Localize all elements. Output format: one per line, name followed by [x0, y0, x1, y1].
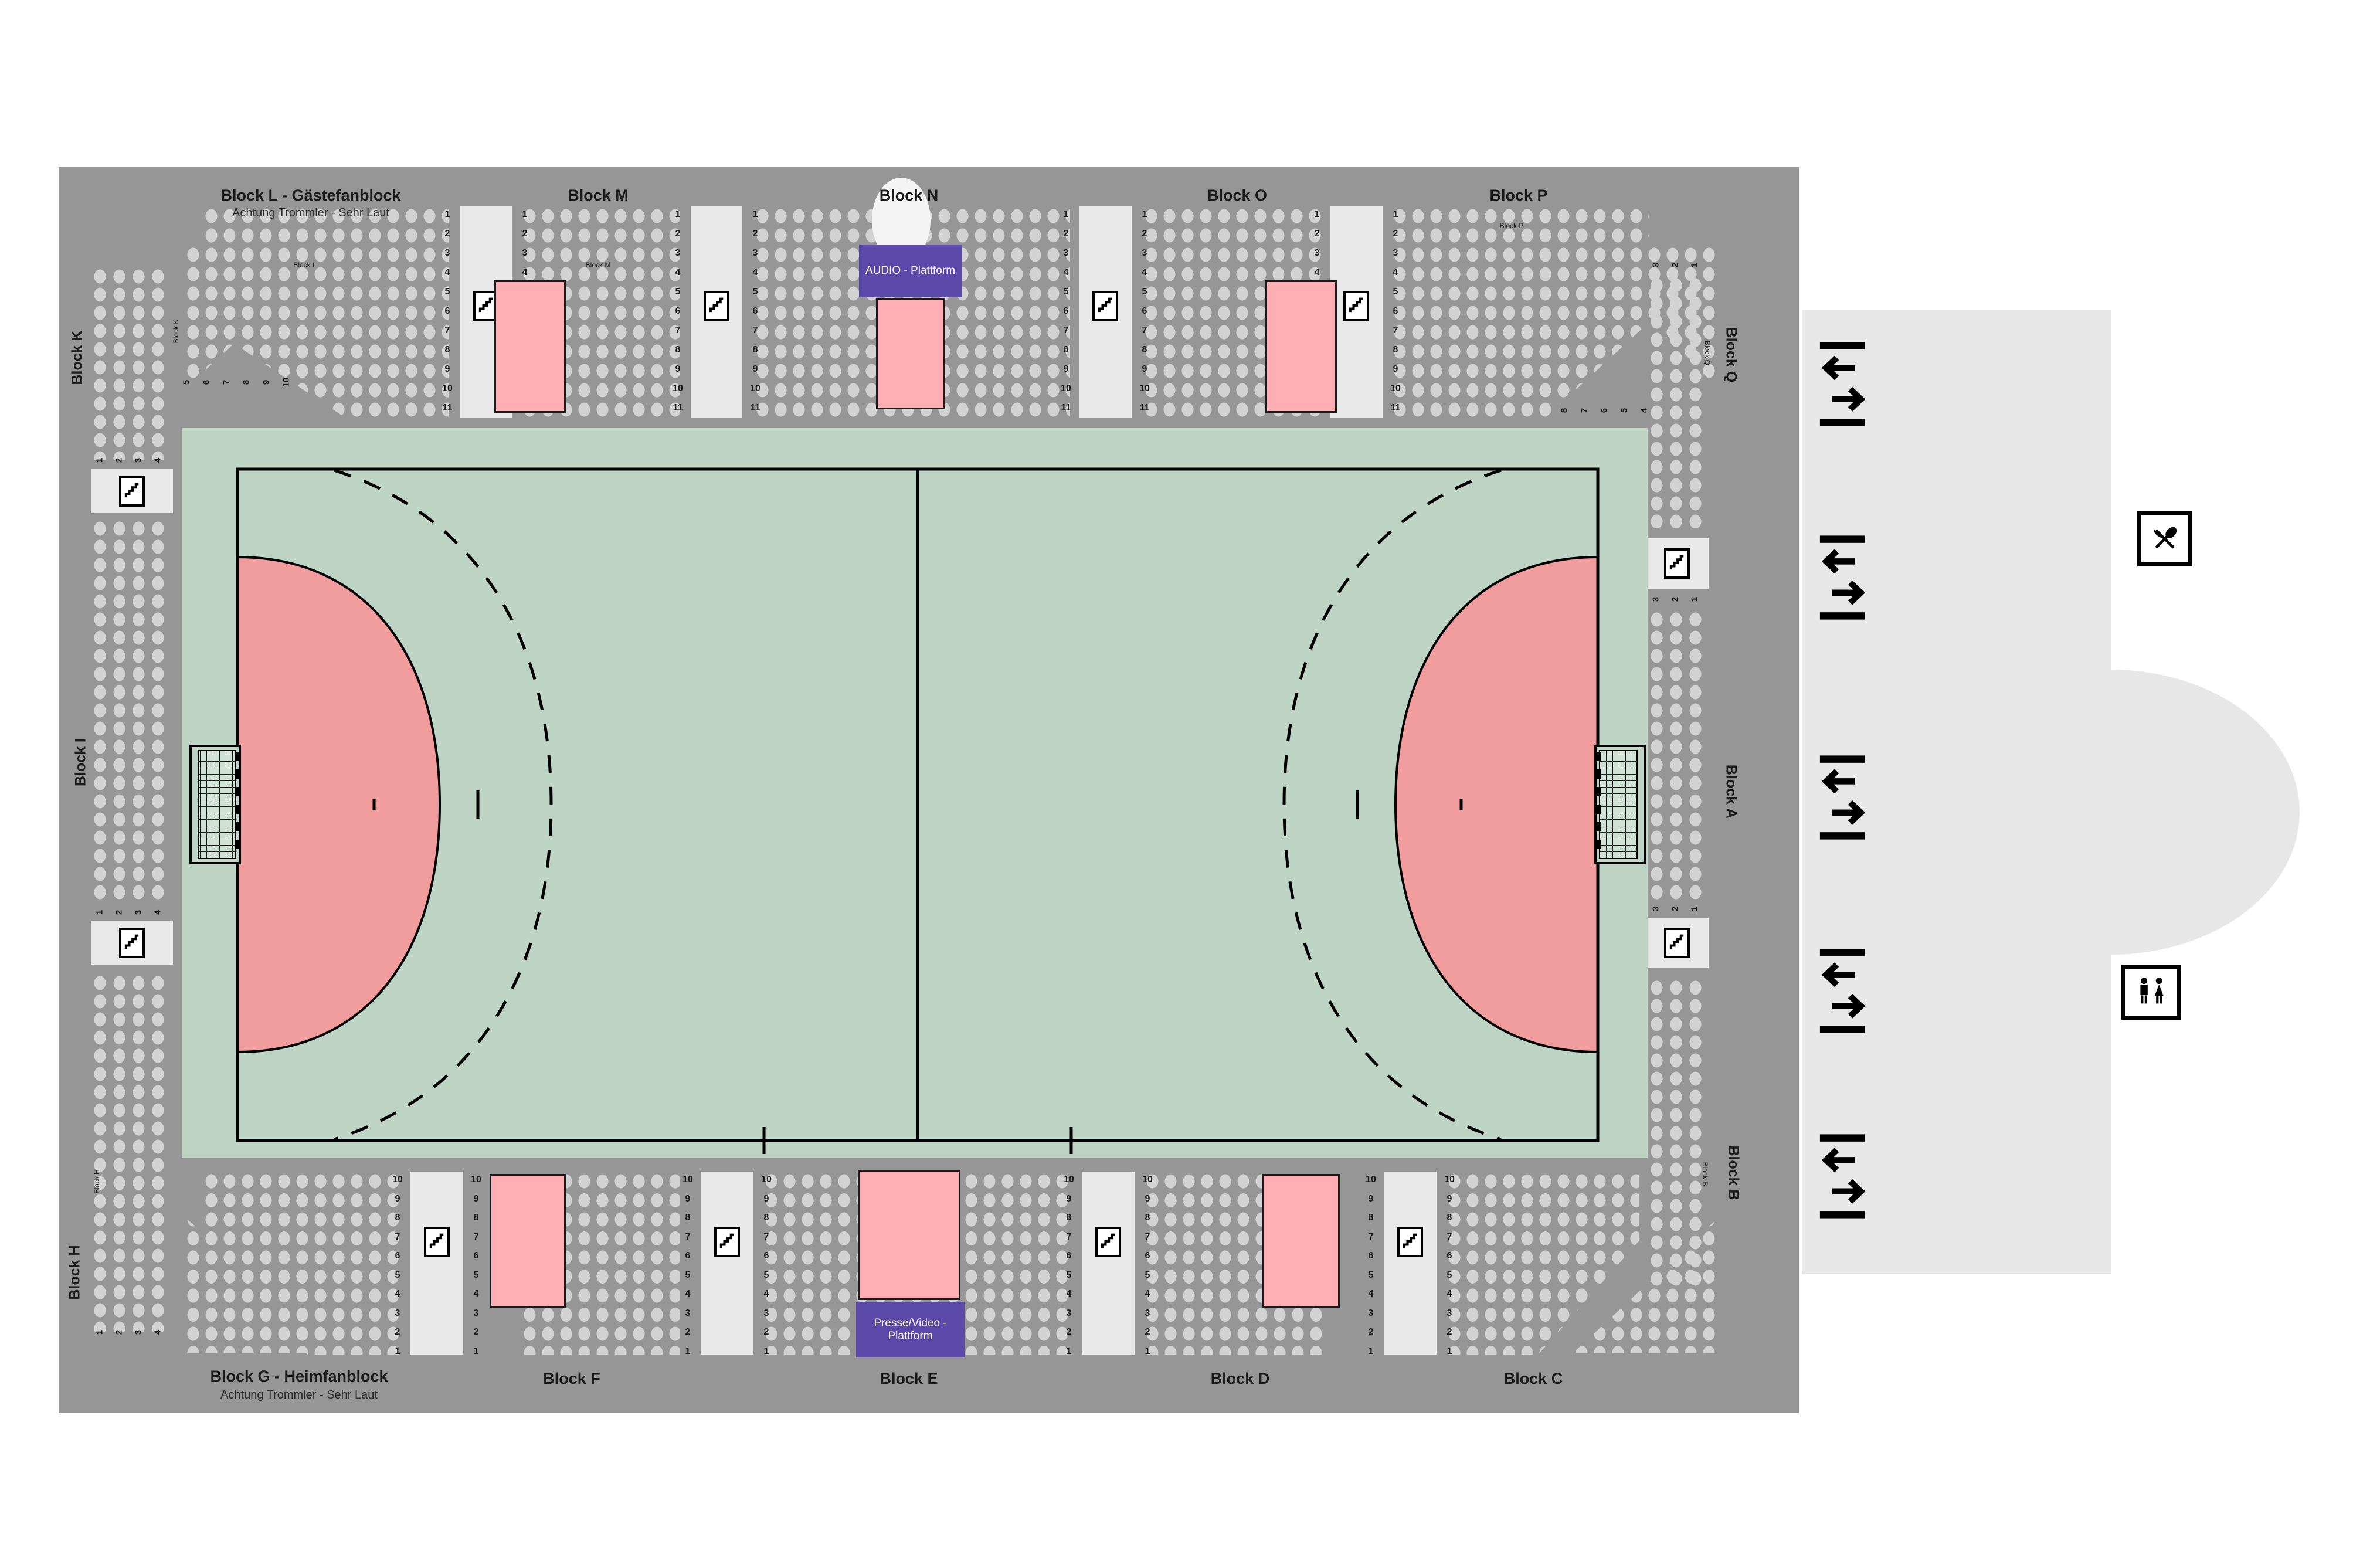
wc-icon — [2121, 965, 2181, 1020]
arena-seating-map: 1234567891011123456789101112345678910111… — [0, 0, 2353, 1568]
row-number: 4 — [434, 267, 460, 278]
block-f-title: Block F — [543, 1370, 600, 1388]
block-p-title: Block P — [1489, 186, 1547, 205]
row-number: 2 — [1132, 229, 1157, 239]
stair-corridor — [1384, 1172, 1437, 1355]
stairs-icon — [1397, 1227, 1423, 1257]
row-number: 10 — [675, 1175, 701, 1185]
column-number: 5 — [1619, 408, 1629, 413]
stair-corridor — [701, 1172, 753, 1355]
row-number: 9 — [1437, 1194, 1462, 1204]
column-number: 2 — [114, 910, 124, 915]
block-a-label: Block A — [1723, 765, 1740, 819]
row-number: 9 — [1053, 364, 1079, 375]
column-number: 4 — [153, 1330, 163, 1335]
row-number: 3 — [1304, 248, 1330, 259]
column-number: 1 — [1690, 597, 1700, 602]
row-number: 10 — [665, 383, 691, 394]
seats-block-i — [91, 519, 170, 903]
column-number: 3 — [134, 910, 144, 915]
row-number: 1 — [1383, 209, 1408, 220]
column-number: 5 — [182, 380, 192, 385]
stairs-icon — [1092, 291, 1118, 321]
row-number: 3 — [1437, 1308, 1462, 1319]
seats-block-p — [1391, 206, 1649, 418]
row-number: 6 — [1437, 1251, 1462, 1261]
row-number: 1 — [675, 1346, 701, 1357]
row-number: 7 — [1358, 1232, 1384, 1243]
column-number: 3 — [1651, 907, 1661, 911]
row-number: 5 — [753, 1270, 779, 1281]
column-number: 1 — [95, 910, 105, 915]
column-number: 3 — [134, 458, 144, 463]
row-number: 3 — [512, 248, 538, 259]
row-number: 2 — [385, 1327, 410, 1338]
row-number: 9 — [463, 1194, 489, 1204]
column-number: 2 — [1670, 263, 1680, 267]
row-number: 4 — [463, 1289, 489, 1299]
column-number: 3 — [1651, 597, 1661, 602]
stair-corridor — [1082, 1172, 1135, 1355]
row-number: 9 — [1132, 364, 1157, 375]
row-number: 4 — [1056, 1289, 1082, 1299]
standing-block-m — [494, 280, 566, 413]
standing-block-n — [876, 298, 945, 409]
row-number: 1 — [665, 209, 691, 220]
audio-platform-label: AUDIO - Plattform — [865, 264, 955, 277]
stairs-icon — [119, 928, 145, 958]
stairs-icon — [1664, 548, 1690, 579]
block-g-subtitle: Achtung Trommler - Sehr Laut — [220, 1389, 378, 1402]
row-number: 8 — [665, 345, 691, 355]
column-number: 8 — [242, 380, 252, 385]
row-number: 6 — [1053, 306, 1079, 317]
block-h-label: Block H — [67, 1245, 84, 1299]
row-number: 8 — [1056, 1213, 1082, 1223]
row-number: 2 — [434, 229, 460, 239]
row-number: 4 — [385, 1289, 410, 1299]
row-number: 4 — [1304, 267, 1330, 278]
block-b-label: Block B — [1725, 1145, 1742, 1200]
row-number: 10 — [463, 1175, 489, 1185]
row-number: 1 — [512, 209, 538, 220]
row-number: 4 — [1135, 1289, 1160, 1299]
column-number: 4 — [153, 458, 163, 463]
row-number: 2 — [512, 229, 538, 239]
block-e-title: Block E — [880, 1370, 938, 1388]
row-number: 9 — [385, 1194, 410, 1204]
block-c-title: Block C — [1504, 1370, 1563, 1388]
entrance-exit-icon — [1819, 534, 1868, 621]
row-number: 4 — [675, 1289, 701, 1299]
row-number: 5 — [1437, 1270, 1462, 1281]
row-number: 10 — [1358, 1175, 1384, 1185]
row-number: 6 — [1132, 306, 1157, 317]
row-number: 11 — [742, 403, 768, 413]
seats-block-b-side — [1648, 978, 1706, 1289]
row-number: 10 — [1135, 1175, 1160, 1185]
row-number: 3 — [463, 1308, 489, 1319]
row-number: 5 — [742, 287, 768, 297]
foyer-bump — [1922, 670, 2300, 955]
block-l-title: Block L - Gästefanblock — [220, 186, 400, 205]
row-number: 9 — [675, 1194, 701, 1204]
row-number: 1 — [1132, 209, 1157, 220]
block-p-small-label: Block P — [1500, 222, 1524, 230]
stairs-icon — [714, 1227, 740, 1257]
row-number: 5 — [1056, 1270, 1082, 1281]
column-number: 2 — [114, 1330, 124, 1335]
entrance-exit-icon — [1819, 754, 1868, 841]
column-number: 2 — [1670, 907, 1680, 911]
block-n-title: Block N — [880, 186, 939, 205]
row-number: 8 — [1383, 345, 1408, 355]
column-number: 2 — [1670, 597, 1680, 602]
press-video-platform: Presse/Video - Plattform — [856, 1302, 965, 1357]
row-number: 10 — [1383, 383, 1408, 394]
row-number: 2 — [1437, 1327, 1462, 1338]
court-surface — [182, 428, 1648, 1158]
row-number: 9 — [1383, 364, 1408, 375]
row-number: 3 — [742, 248, 768, 259]
row-number: 8 — [742, 345, 768, 355]
row-number: 7 — [1056, 1232, 1082, 1243]
row-number: 10 — [1437, 1175, 1462, 1185]
row-number: 7 — [434, 325, 460, 336]
row-number: 5 — [665, 287, 691, 297]
row-number: 5 — [1383, 287, 1408, 297]
stair-corridor — [410, 1172, 463, 1355]
block-q-small-label: Block Q — [1703, 341, 1712, 365]
row-number: 3 — [385, 1308, 410, 1319]
row-number: 8 — [1135, 1213, 1160, 1223]
seats-block-q-side — [1648, 276, 1706, 528]
row-number: 9 — [742, 364, 768, 375]
row-number: 4 — [1053, 267, 1079, 278]
row-number: 8 — [675, 1213, 701, 1223]
row-number: 7 — [1437, 1232, 1462, 1243]
row-number: 2 — [675, 1327, 701, 1338]
standing-block-f — [490, 1174, 566, 1308]
seats-block-a-side — [1648, 610, 1706, 902]
row-number: 4 — [1358, 1289, 1384, 1299]
row-number: 7 — [1132, 325, 1157, 336]
row-number: 8 — [434, 345, 460, 355]
block-o-title: Block O — [1207, 186, 1267, 205]
row-number: 7 — [1135, 1232, 1160, 1243]
row-number: 1 — [1135, 1346, 1160, 1357]
row-number: 1 — [1304, 209, 1330, 220]
row-number: 6 — [665, 306, 691, 317]
block-g-title: Block G - Heimfanblock — [210, 1367, 388, 1386]
row-number: 7 — [742, 325, 768, 336]
row-number: 6 — [385, 1251, 410, 1261]
block-d-title: Block D — [1211, 1370, 1270, 1388]
row-number: 5 — [675, 1270, 701, 1281]
row-number: 11 — [665, 403, 691, 413]
block-b-small-label: Block B — [1701, 1162, 1709, 1186]
column-number: 7 — [1580, 408, 1590, 413]
row-number: 11 — [1053, 403, 1079, 413]
column-number: 1 — [95, 1330, 105, 1335]
stairs-icon — [424, 1227, 450, 1257]
row-number: 7 — [385, 1232, 410, 1243]
row-number: 1 — [1056, 1346, 1082, 1357]
row-number: 2 — [1056, 1327, 1082, 1338]
row-number: 1 — [1358, 1346, 1384, 1357]
row-number: 7 — [753, 1232, 779, 1243]
row-number: 5 — [434, 287, 460, 297]
standing-block-e — [858, 1170, 960, 1300]
row-number: 2 — [1358, 1327, 1384, 1338]
row-number: 5 — [1132, 287, 1157, 297]
block-i-label: Block I — [73, 738, 90, 786]
row-number: 9 — [1056, 1194, 1082, 1204]
stairs-icon — [1343, 291, 1369, 321]
column-number: 4 — [153, 910, 163, 915]
row-number: 6 — [675, 1251, 701, 1261]
row-number: 5 — [1053, 287, 1079, 297]
row-number: 2 — [1135, 1327, 1160, 1338]
row-number: 2 — [463, 1327, 489, 1338]
row-number: 9 — [753, 1194, 779, 1204]
column-number: 9 — [262, 380, 271, 385]
block-l-subtitle: Achtung Trommler - Sehr Laut — [232, 206, 389, 220]
row-number: 8 — [1132, 345, 1157, 355]
column-number: 4 — [1639, 408, 1649, 413]
block-m-title: Block M — [568, 186, 629, 205]
row-number: 4 — [753, 1289, 779, 1299]
audio-platform: AUDIO - Plattform — [859, 245, 962, 297]
row-number: 11 — [1383, 403, 1408, 413]
row-number: 9 — [1358, 1194, 1384, 1204]
row-number: 6 — [463, 1251, 489, 1261]
row-number: 11 — [434, 403, 460, 413]
row-number: 8 — [1437, 1213, 1462, 1223]
row-number: 10 — [385, 1175, 410, 1185]
row-number: 10 — [753, 1175, 779, 1185]
row-number: 2 — [1383, 229, 1408, 239]
row-number: 6 — [1383, 306, 1408, 317]
row-number: 6 — [434, 306, 460, 317]
row-number: 10 — [434, 383, 460, 394]
block-h-small-label: Block H — [93, 1169, 101, 1193]
row-number: 9 — [1135, 1194, 1160, 1204]
row-number: 8 — [753, 1213, 779, 1223]
column-number: 3 — [1651, 263, 1661, 267]
row-number: 2 — [665, 229, 691, 239]
row-number: 3 — [675, 1308, 701, 1319]
row-number: 3 — [1053, 248, 1079, 259]
row-number: 1 — [385, 1346, 410, 1357]
block-l-small-label: Block L — [293, 261, 316, 269]
row-number: 11 — [1132, 403, 1157, 413]
stairs-icon — [119, 476, 145, 507]
row-number: 3 — [434, 248, 460, 259]
column-number: 10 — [281, 378, 291, 388]
row-number: 4 — [1132, 267, 1157, 278]
column-number: 6 — [1600, 408, 1610, 413]
column-number: 6 — [202, 380, 212, 385]
stairs-icon — [1664, 928, 1690, 958]
standing-block-d — [1262, 1174, 1340, 1308]
entrance-exit-icon — [1819, 341, 1868, 427]
stairs-icon — [1095, 1227, 1121, 1257]
seats-block-h-lower — [91, 973, 170, 1332]
block-k-small-label: Block K — [172, 320, 180, 344]
row-number: 3 — [1056, 1308, 1082, 1319]
row-number: 8 — [463, 1213, 489, 1223]
row-number: 7 — [463, 1232, 489, 1243]
row-number: 7 — [1383, 325, 1408, 336]
column-number: 1 — [1690, 263, 1700, 267]
row-number: 1 — [742, 209, 768, 220]
row-number: 10 — [742, 383, 768, 394]
column-number: 3 — [134, 1330, 144, 1335]
column-number: 8 — [1560, 408, 1570, 413]
row-number: 5 — [1358, 1270, 1384, 1281]
row-number: 3 — [1135, 1308, 1160, 1319]
seats-block-k-upper — [91, 267, 170, 460]
row-number: 4 — [742, 267, 768, 278]
row-number: 6 — [1358, 1251, 1384, 1261]
row-number: 1 — [1437, 1346, 1462, 1357]
row-number: 10 — [1056, 1175, 1082, 1185]
standing-block-o — [1265, 280, 1337, 413]
row-number: 1 — [434, 209, 460, 220]
row-number: 7 — [1053, 325, 1079, 336]
row-number: 3 — [1132, 248, 1157, 259]
row-number: 6 — [1056, 1251, 1082, 1261]
row-number: 7 — [665, 325, 691, 336]
block-q-label: Block Q — [1723, 327, 1740, 382]
row-number: 3 — [665, 248, 691, 259]
row-number: 4 — [1383, 267, 1408, 278]
row-number: 5 — [385, 1270, 410, 1281]
row-number: 2 — [1304, 229, 1330, 239]
entrance-exit-icon — [1819, 948, 1868, 1034]
row-number: 4 — [512, 267, 538, 278]
row-number: 8 — [385, 1213, 410, 1223]
row-number: 1 — [1053, 209, 1079, 220]
row-number: 4 — [1437, 1289, 1462, 1299]
row-number: 2 — [1053, 229, 1079, 239]
row-number: 6 — [742, 306, 768, 317]
row-number: 3 — [1383, 248, 1408, 259]
row-number: 4 — [665, 267, 691, 278]
entrance-exit-icon — [1819, 1133, 1868, 1220]
row-number: 7 — [675, 1232, 701, 1243]
row-number: 1 — [753, 1346, 779, 1357]
column-number: 1 — [1690, 907, 1700, 911]
row-number: 8 — [1053, 345, 1079, 355]
row-number: 2 — [742, 229, 768, 239]
column-number: 1 — [95, 458, 105, 463]
row-number: 3 — [1358, 1308, 1384, 1319]
row-number: 6 — [753, 1251, 779, 1261]
restaurant-icon — [2137, 511, 2192, 566]
block-m-small-label: Block M — [586, 261, 611, 269]
row-number: 3 — [753, 1308, 779, 1319]
row-number: 1 — [463, 1346, 489, 1357]
row-number: 5 — [1135, 1270, 1160, 1281]
row-number: 5 — [463, 1270, 489, 1281]
row-number: 2 — [753, 1327, 779, 1338]
row-number: 10 — [1053, 383, 1079, 394]
row-number: 9 — [434, 364, 460, 375]
row-number: 8 — [1358, 1213, 1384, 1223]
row-number: 6 — [1135, 1251, 1160, 1261]
block-k-label: Block K — [69, 330, 86, 385]
row-number: 9 — [665, 364, 691, 375]
row-number: 10 — [1132, 383, 1157, 394]
stairs-icon — [704, 291, 729, 321]
column-number: 7 — [222, 380, 232, 385]
column-number: 2 — [114, 458, 124, 463]
press-video-platform-label: Presse/Video - Plattform — [856, 1317, 965, 1343]
